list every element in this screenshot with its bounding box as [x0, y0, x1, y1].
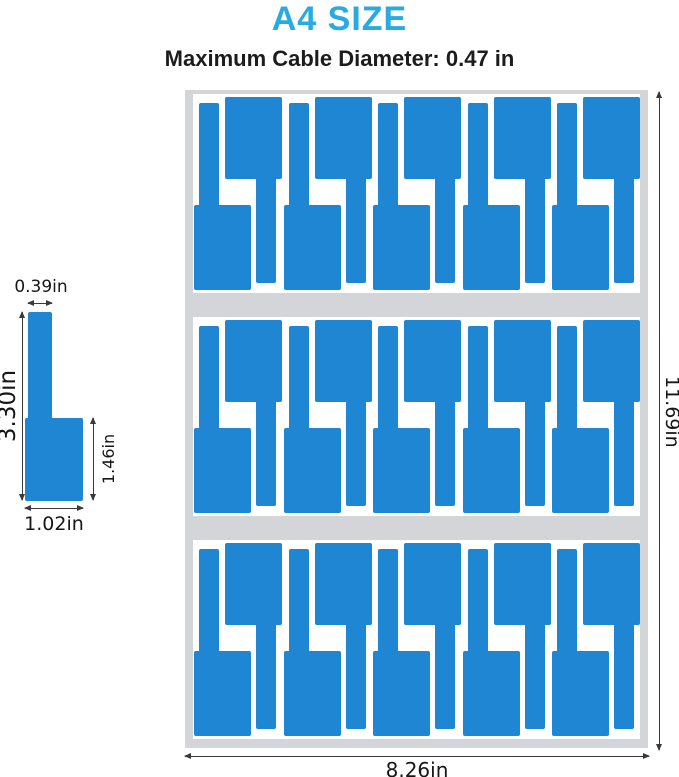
up-label-body	[463, 651, 520, 736]
up-label-body	[552, 428, 609, 513]
total-height-label: 3.30in	[0, 351, 21, 461]
down-label-stem	[435, 176, 455, 283]
sheet-width-arrow	[185, 756, 649, 757]
product-diagram-page: A4 SIZE Maximum Cable Diameter: 0.47 in …	[0, 0, 679, 777]
up-label-stem	[199, 549, 219, 654]
up-label-stem	[557, 326, 577, 431]
down-label-stem	[435, 622, 455, 729]
up-label-body	[463, 205, 520, 290]
down-label-body	[404, 97, 461, 179]
down-label-stem	[346, 622, 366, 729]
label-pair	[372, 540, 461, 739]
sheet-height-arrow	[659, 92, 660, 750]
down-label-stem	[525, 176, 545, 283]
label-pair	[462, 317, 551, 516]
up-label-body	[194, 651, 251, 736]
stem-width-arrow	[28, 303, 52, 304]
down-label-stem	[256, 399, 276, 506]
up-label-body	[373, 205, 430, 290]
down-label-stem	[435, 399, 455, 506]
down-label-body	[315, 320, 372, 402]
up-label-stem	[557, 103, 577, 208]
label-pair	[283, 317, 372, 516]
down-label-body	[404, 320, 461, 402]
body-height-arrow	[93, 418, 94, 500]
down-label-body	[225, 320, 282, 402]
up-label-body	[284, 651, 341, 736]
down-label-stem	[614, 176, 634, 283]
down-label-body	[494, 543, 551, 625]
label-pair	[551, 94, 640, 293]
down-label-stem	[525, 622, 545, 729]
sheet-width-label: 8.26in	[185, 758, 649, 777]
up-label-stem	[378, 549, 398, 654]
up-label-stem	[468, 103, 488, 208]
down-label-stem	[614, 399, 634, 506]
down-label-body	[404, 543, 461, 625]
down-label-body	[494, 320, 551, 402]
down-label-stem	[256, 176, 276, 283]
up-label-body	[284, 205, 341, 290]
label-pair	[283, 94, 372, 293]
down-label-body	[225, 543, 282, 625]
up-label-stem	[199, 103, 219, 208]
label-pair	[462, 540, 551, 739]
label-row	[193, 540, 640, 739]
up-label-body	[284, 428, 341, 513]
label-row	[193, 317, 640, 516]
label-pair	[372, 317, 461, 516]
up-label-stem	[289, 103, 309, 208]
up-label-body	[373, 428, 430, 513]
up-label-stem	[289, 326, 309, 431]
down-label-body	[583, 543, 640, 625]
body-width-label: 1.02in	[14, 513, 94, 535]
up-label-body	[463, 428, 520, 513]
single-label-body	[25, 418, 83, 501]
up-label-body	[552, 651, 609, 736]
body-width-arrow	[25, 508, 83, 509]
down-label-body	[315, 543, 372, 625]
stem-width-label: 0.39in	[8, 277, 74, 297]
down-label-body	[225, 97, 282, 179]
page-subtitle: Maximum Cable Diameter: 0.47 in	[0, 46, 679, 72]
up-label-stem	[468, 326, 488, 431]
down-label-body	[583, 97, 640, 179]
label-sheet	[185, 90, 648, 748]
down-label-stem	[346, 176, 366, 283]
page-title: A4 SIZE	[0, 0, 679, 39]
body-height-label: 1.46in	[99, 419, 119, 499]
up-label-body	[194, 205, 251, 290]
up-label-body	[194, 428, 251, 513]
label-pair	[551, 317, 640, 516]
down-label-stem	[346, 399, 366, 506]
label-pair	[193, 94, 282, 293]
up-label-stem	[378, 103, 398, 208]
label-pair	[462, 94, 551, 293]
total-height-arrow	[22, 312, 23, 500]
up-label-stem	[199, 326, 219, 431]
down-label-stem	[256, 622, 276, 729]
up-label-body	[373, 651, 430, 736]
label-pair	[283, 540, 372, 739]
up-label-body	[552, 205, 609, 290]
single-label-stem	[28, 312, 52, 420]
up-label-stem	[289, 549, 309, 654]
label-pair	[193, 317, 282, 516]
down-label-stem	[525, 399, 545, 506]
up-label-stem	[468, 549, 488, 654]
up-label-stem	[557, 549, 577, 654]
down-label-stem	[614, 622, 634, 729]
label-pair	[551, 540, 640, 739]
label-pair	[193, 540, 282, 739]
up-label-stem	[378, 326, 398, 431]
sheet-height-label: 11.69in	[661, 376, 679, 448]
down-label-body	[315, 97, 372, 179]
down-label-body	[494, 97, 551, 179]
down-label-body	[583, 320, 640, 402]
label-row	[193, 94, 640, 293]
label-pair	[372, 94, 461, 293]
